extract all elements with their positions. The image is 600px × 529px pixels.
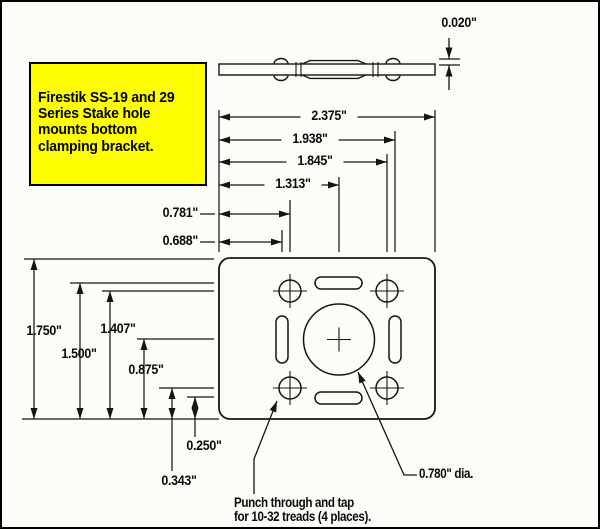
center-hole-crosshair xyxy=(327,328,351,352)
leader-punch-note xyxy=(254,401,277,494)
thickness-dimension xyxy=(439,38,460,90)
dim-label-overall-height: 1.750" xyxy=(22,324,66,338)
dim-label-top-holes-y: 1.407" xyxy=(96,322,140,336)
dim-label-bottom-holes-y: 0.343" xyxy=(157,474,201,488)
side-view-plate-edge xyxy=(219,64,435,75)
side-view xyxy=(219,59,435,81)
side-view-right-dimple-bottom xyxy=(386,75,400,81)
annotation-punch-note: Punch through and tap for 10-32 treads (… xyxy=(234,496,397,524)
dim-label-left-holes-x: 0.781" xyxy=(150,206,198,220)
slot-right xyxy=(389,316,401,363)
dim-label-right-holes-x: 1.845" xyxy=(286,154,343,168)
dim-label-overall-width: 2.375" xyxy=(300,109,357,123)
slot-top xyxy=(315,277,362,289)
leader-lines xyxy=(254,372,417,494)
dim-label-center-hole-x: 1.313" xyxy=(264,177,321,191)
side-view-right-dimple-top xyxy=(386,59,400,64)
plate-front-view xyxy=(219,258,435,419)
side-view-left-dimple-top xyxy=(274,59,288,64)
side-view-left-dimple-bottom xyxy=(274,75,288,81)
plate-outline xyxy=(219,258,435,419)
note-box: Firestik SS-19 and 29 Series Stake hole … xyxy=(29,62,207,186)
slot-bottom xyxy=(315,392,362,404)
dim-label-center-hole-y: 0.875" xyxy=(124,363,168,377)
bracket-drawing: Firestik SS-19 and 29 Series Stake hole … xyxy=(0,0,600,529)
dim-label-right-slot-x: 1.938" xyxy=(281,132,338,146)
dim-label-bottom-slot-y: 0.250" xyxy=(182,439,226,453)
dim-label-top-slot-y: 1.500" xyxy=(57,347,101,361)
dim-label-thickness: 0.020" xyxy=(435,16,483,30)
note-box-text: Firestik SS-19 and 29 Series Stake hole … xyxy=(38,90,190,155)
dim-label-left-slot-x: 0.688" xyxy=(150,234,198,248)
annotation-center-hole-diameter: 0.780" dia. xyxy=(419,467,505,481)
slot-left xyxy=(276,316,288,363)
